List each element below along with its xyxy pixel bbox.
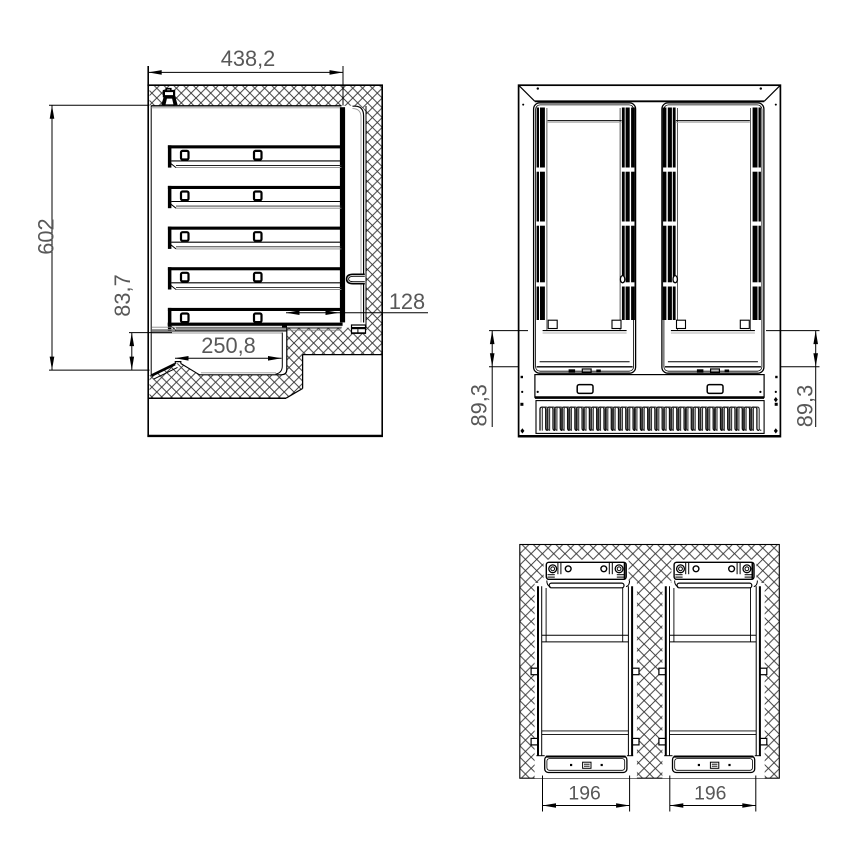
svg-text:602: 602 — [34, 218, 59, 254]
svg-text:250,8: 250,8 — [201, 333, 256, 358]
svg-text:196: 196 — [694, 783, 726, 805]
svg-text:128: 128 — [389, 289, 425, 314]
svg-text:89,3: 89,3 — [467, 384, 492, 426]
svg-text:89,3: 89,3 — [792, 385, 817, 427]
svg-text:438,2: 438,2 — [221, 46, 276, 71]
svg-text:83,7: 83,7 — [110, 274, 135, 316]
svg-text:196: 196 — [568, 783, 600, 805]
